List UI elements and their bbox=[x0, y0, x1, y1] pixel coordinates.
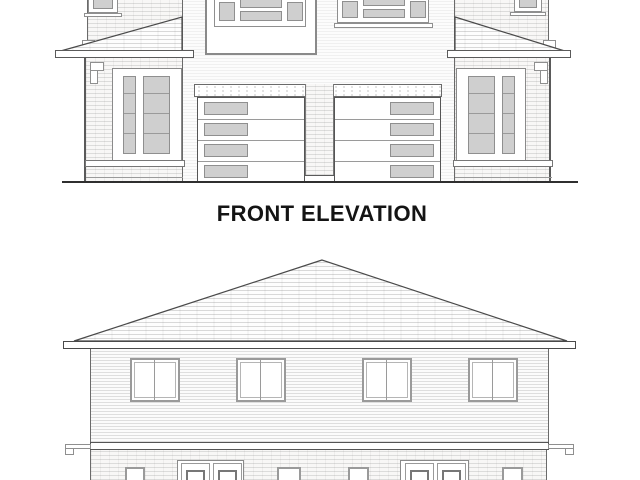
architectural-drawing-sheet: FRONT ELEVATION bbox=[0, 0, 640, 480]
front-right-upper-window bbox=[337, 0, 429, 23]
front-left-upper-window-side-lite-left bbox=[219, 2, 235, 21]
front-left-bay-base-course bbox=[86, 177, 183, 178]
front-left-bay-sill-band bbox=[85, 160, 185, 167]
front-right-garage-panel-joint bbox=[335, 140, 440, 141]
rear-patio-door-left bbox=[177, 460, 244, 480]
front-right-garage-lite bbox=[390, 123, 434, 136]
rear-patio-door-left-leaf-1-glass bbox=[186, 470, 205, 480]
rear-patio-door-right-leaf-2-glass bbox=[442, 470, 461, 480]
front-right-upper-window-sill bbox=[334, 23, 433, 28]
front-right-garage-lite bbox=[390, 165, 434, 178]
rear-eave-fascia bbox=[63, 341, 576, 349]
front-upper-right-window-glass bbox=[519, 0, 537, 8]
rear-lower-window-2 bbox=[277, 467, 301, 480]
rear-upper-window-3-mullion bbox=[386, 360, 387, 400]
front-upper-right-window bbox=[514, 0, 542, 12]
front-left-upper-window-side-lite-right bbox=[287, 2, 303, 21]
front-right-bay-window-wide-lite bbox=[468, 76, 495, 154]
rear-lower-window-3 bbox=[348, 467, 369, 480]
front-right-upper-window-side-lite-left bbox=[342, 1, 358, 18]
front-right-garage-lintel bbox=[331, 84, 442, 97]
front-right-porch-fascia bbox=[447, 50, 571, 58]
rear-upper-window-4-sash bbox=[472, 362, 514, 398]
rear-patio-door-right-leaf-1-glass bbox=[410, 470, 429, 480]
rear-upper-window-3-sash bbox=[366, 362, 408, 398]
rear-lower-window-4 bbox=[502, 467, 523, 480]
rear-patio-door-left-leaf-1 bbox=[181, 463, 210, 480]
rear-elevation-drawing bbox=[0, 240, 640, 480]
front-right-bay-window-narrow-lite bbox=[502, 76, 515, 154]
front-left-garage-lite bbox=[204, 144, 248, 157]
rear-patio-door-right-leaf-1 bbox=[405, 463, 434, 480]
rear-left-scupper-drop bbox=[65, 448, 74, 455]
front-left-garage-panel-joint bbox=[198, 140, 304, 141]
rear-upper-window-2-mullion bbox=[260, 360, 261, 400]
rear-upper-window-2-sash bbox=[240, 362, 282, 398]
front-elevation-title: FRONT ELEVATION bbox=[0, 201, 640, 227]
front-left-garage-panel-joint bbox=[198, 119, 304, 120]
rear-patio-door-right-leaf-2 bbox=[437, 463, 466, 480]
rear-right-scupper-drop bbox=[565, 448, 574, 455]
front-right-garage-lite bbox=[390, 102, 434, 115]
rear-upper-window-1-sash bbox=[134, 362, 176, 398]
front-right-upper-window-centre-top bbox=[363, 0, 405, 6]
front-right-porch-roof-outline bbox=[447, 12, 577, 54]
rear-band-board bbox=[90, 442, 549, 450]
front-right-bay-sill-band bbox=[453, 160, 553, 167]
front-right-upper-window-centre-bottom bbox=[363, 9, 405, 18]
front-left-porch-fascia bbox=[55, 50, 194, 58]
front-right-garage-door bbox=[334, 97, 441, 182]
front-right-garage-lite bbox=[390, 144, 434, 157]
rear-patio-door-left-leaf-2 bbox=[213, 463, 242, 480]
rear-upper-window-4-mullion bbox=[492, 360, 493, 400]
front-left-garage-door bbox=[197, 97, 305, 182]
front-left-bay-window-narrow-lite bbox=[123, 76, 136, 154]
front-right-garage-panel-joint bbox=[335, 161, 440, 162]
front-elevation-drawing: FRONT ELEVATION bbox=[0, 0, 640, 240]
front-left-garage-lintel bbox=[194, 84, 306, 97]
front-left-porch-roof-outline bbox=[55, 12, 195, 54]
rear-upper-window-1 bbox=[130, 358, 180, 402]
front-upper-left-window-glass bbox=[93, 0, 113, 9]
rear-lower-window-1 bbox=[125, 467, 145, 480]
front-right-downspout bbox=[540, 70, 548, 84]
front-right-bay-window bbox=[456, 68, 526, 162]
rear-lower-wall bbox=[90, 450, 547, 480]
rear-upper-window-1-mullion bbox=[154, 360, 155, 400]
front-right-garage-panel-joint bbox=[335, 119, 440, 120]
front-grade-line bbox=[62, 181, 578, 183]
front-garage-centre-pier bbox=[305, 84, 334, 175]
front-right-upper-window-side-lite-right bbox=[410, 1, 426, 18]
rear-patio-door-right bbox=[400, 460, 469, 480]
front-left-upper-window-centre-bottom bbox=[240, 11, 282, 21]
front-left-garage-lite bbox=[204, 123, 248, 136]
front-left-bay-window bbox=[112, 68, 182, 162]
front-left-upper-window-centre-top bbox=[240, 0, 282, 8]
rear-upper-window-3 bbox=[362, 358, 412, 402]
front-left-garage-panel-joint bbox=[198, 161, 304, 162]
rear-upper-window-2 bbox=[236, 358, 286, 402]
front-left-garage-lite bbox=[204, 102, 248, 115]
rear-hip-roof-outline bbox=[60, 255, 580, 345]
front-left-upper-window bbox=[214, 0, 306, 27]
front-left-bay-window-wide-lite bbox=[143, 76, 170, 154]
front-right-bay-base-course bbox=[455, 177, 552, 178]
rear-patio-door-left-leaf-2-glass bbox=[218, 470, 237, 480]
front-left-downspout bbox=[90, 70, 98, 84]
rear-upper-window-4 bbox=[468, 358, 518, 402]
front-left-garage-lite bbox=[204, 165, 248, 178]
